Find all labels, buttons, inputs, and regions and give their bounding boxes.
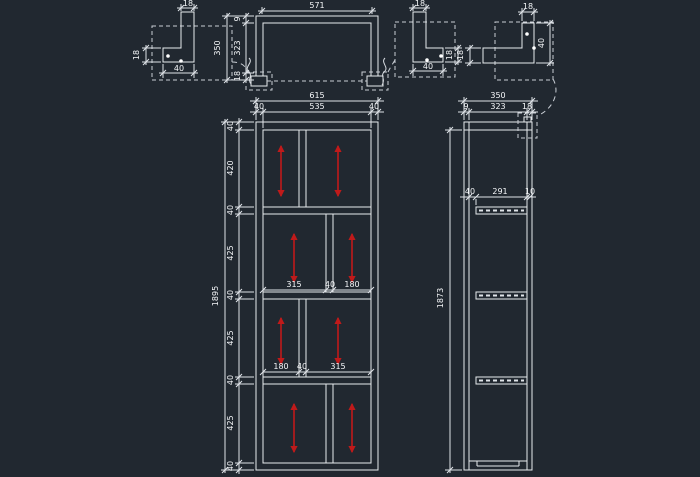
front-outline-outer — [256, 122, 378, 470]
dim-label: 18 — [523, 2, 533, 11]
dim-label: 9 — [463, 102, 468, 111]
point-marker — [525, 32, 529, 36]
dim-label: 535 — [309, 102, 324, 111]
dim-label: 180 — [273, 362, 288, 371]
detail-section-left: 18 18 40 — [132, 0, 232, 80]
front-dim-height: 1895 40 420 40 425 40 425 40 425 40 — [211, 118, 254, 474]
point-marker — [179, 59, 183, 63]
plan-dim-width: 571 — [258, 1, 376, 14]
dim-label: 315 — [330, 362, 345, 371]
detail-section-middle: 18 18 40 — [395, 0, 462, 77]
plan-outline-outer — [256, 16, 378, 76]
dim-label: 40 — [254, 102, 264, 111]
dim-label: 10 — [525, 187, 535, 196]
plan-view: 571 350 9 323 18 — [213, 1, 388, 90]
dim-label: 40 — [226, 290, 235, 300]
dim-label: 615 — [309, 91, 324, 100]
dim-label: 40 — [297, 362, 307, 371]
side-dim-depth: 350 9 323 18 — [458, 91, 538, 120]
dim-label: 323 — [233, 40, 242, 55]
dim-label: 291 — [492, 187, 507, 196]
dim-label: 425 — [226, 415, 235, 430]
front-shelves — [263, 207, 371, 384]
dim-label: 18 — [415, 0, 425, 8]
point-marker — [439, 54, 443, 58]
dim-label: 40 — [226, 205, 235, 215]
side-shelf-sections — [476, 207, 527, 384]
detail-leaders — [232, 60, 556, 116]
dim-label: 40 — [369, 102, 379, 111]
dim-label: 9 — [233, 16, 242, 21]
dim-label: 425 — [226, 245, 235, 260]
plan-dim-depth: 350 9 323 18 — [213, 13, 254, 83]
dim-label: 40 — [423, 62, 433, 71]
cad-drawing-area[interactable]: 571 350 9 323 18 615 — [0, 0, 700, 477]
detail-leader-dashed — [388, 60, 395, 72]
drawing-canvas: 571 350 9 323 18 615 — [0, 0, 700, 477]
plan-outline-inner — [263, 23, 371, 76]
dim-label: 350 — [490, 91, 505, 100]
detail-boundary-dashed — [495, 22, 553, 80]
dim-label: 425 — [226, 330, 235, 345]
detail-profile — [413, 12, 443, 62]
dim-label: 18 — [233, 71, 242, 81]
detail-dims: 18 40 18 — [456, 2, 554, 66]
side-elevation-view: 350 9 323 18 1873 40 291 10 — [436, 91, 538, 473]
point-marker — [166, 54, 170, 58]
plan-foot-right — [367, 76, 383, 86]
detail-leader-dashed — [232, 62, 247, 72]
detail-profile — [483, 23, 534, 63]
front-outline-inner — [263, 130, 371, 463]
front-dividers — [299, 130, 333, 463]
dim-label: 40 — [226, 375, 235, 385]
front-dim-row3: 180 40 315 — [260, 362, 374, 375]
front-elevation-view: 615 40 535 40 1895 40 420 40 425 40 425 … — [211, 91, 384, 474]
dim-label: 40 — [465, 187, 475, 196]
side-bottom-panel — [469, 461, 527, 466]
dim-label: 18 — [456, 50, 465, 60]
point-marker — [532, 46, 536, 50]
dim-label: 40 — [174, 64, 184, 73]
dim-label: 40 — [226, 121, 235, 131]
dim-label: 420 — [226, 160, 235, 175]
dim-label: 1873 — [436, 288, 445, 308]
dim-label: 40 — [325, 280, 335, 289]
dim-label: 40 — [537, 38, 546, 48]
detail-section-right: 18 40 18 — [456, 2, 554, 80]
detail-dims: 18 18 40 — [409, 0, 462, 76]
dim-label: 323 — [490, 102, 505, 111]
dim-label: 180 — [344, 280, 359, 289]
dim-label: 18 — [132, 50, 141, 60]
front-dim-row2: 315 40 180 — [260, 280, 374, 293]
side-dim-height: 1873 — [436, 127, 462, 473]
side-dim-shelf: 40 291 10 — [460, 187, 536, 205]
plan-foot-left — [251, 76, 267, 86]
dim-label: 18 — [522, 102, 532, 111]
dim-label: 1895 — [211, 286, 220, 306]
dim-label: 350 — [213, 40, 222, 55]
dim-label: 18 — [445, 50, 454, 60]
dim-label: 40 — [226, 461, 235, 471]
dim-label: 18 — [183, 0, 193, 8]
dim-label: 571 — [309, 1, 324, 10]
detail-leader-dashed — [537, 79, 556, 116]
dim-label: 315 — [286, 280, 301, 289]
